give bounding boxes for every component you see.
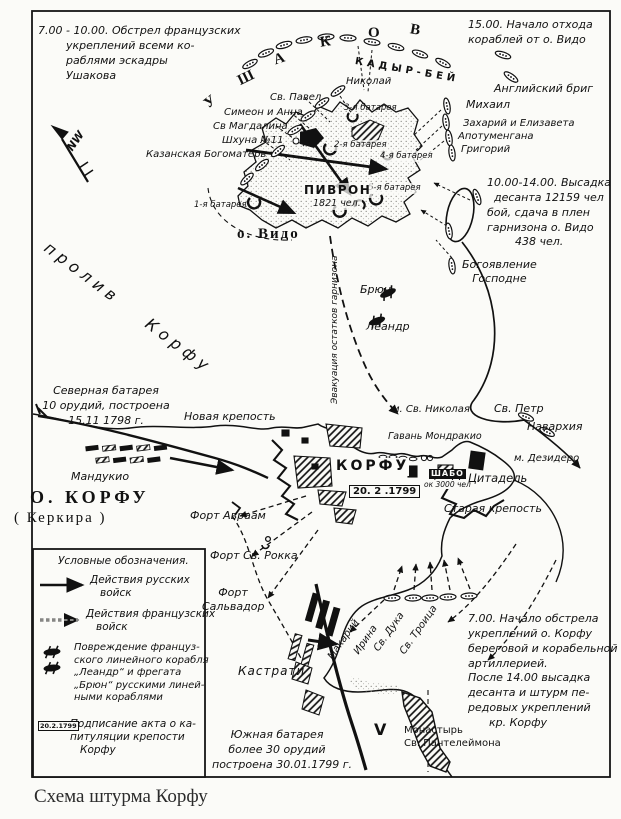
corfu-city-label: КОРФУ [336, 458, 409, 476]
squadron-ushakov-letter: К [319, 33, 332, 51]
vido-commander: ПИВРОН [303, 183, 372, 198]
evacuation-label: Эвакуация остатков гарнизона [330, 255, 341, 404]
legend-russian-actions: Действия русских войск [90, 574, 190, 600]
battery-1-label: 1-я батарея [194, 200, 247, 211]
ship-label-apotumengana: Апотуменгана [458, 131, 534, 144]
battery-2-label: 2-я батарея [333, 140, 388, 151]
map-scheme-storm-of-corfu: 7.00 - 10.00. Обстрел французских укрепл… [0, 0, 621, 819]
note-morning-bombardment: 7.00 - 10.00. Обстрел французских укрепл… [38, 24, 241, 83]
note-corfu-assault: 7.00. Начало обстрела укреплений о. Корф… [468, 612, 618, 731]
battery-4-label: 4-я батарея [379, 151, 434, 162]
monastery-label: Монастырь Св. Пантелеймона [404, 725, 501, 750]
map-caption: Схема штурма Корфу [34, 786, 208, 808]
cape-st-nikolay-label: м. Св. Николая [392, 404, 470, 417]
ship-label-leandr: Леандр [366, 320, 410, 334]
citadel-label: Цитадель [468, 471, 527, 485]
ship-label-pavel: Св. Павел [270, 92, 321, 105]
cape-desidero-label: м. Дезидеро [514, 453, 579, 466]
battery-5-label: 5-я батарея [367, 183, 422, 194]
ship-label-english-brig: Английский бриг [494, 82, 593, 96]
ship-label-zakhariy: Захарий и Елизавета [463, 118, 574, 131]
harbor-label: Гавань Мондракио [388, 431, 482, 443]
ship-label-st-petr: Св. Петр [494, 402, 544, 416]
legend-date-box: 20.2.1799 [38, 721, 79, 731]
ship-label-bogoyavlenie: Богоявление Господне [462, 258, 537, 286]
corfu-island-label: О. КОРФУ [30, 486, 150, 509]
note-ships-withdraw: 15.00. Начало отхода кораблей от о. Видо [468, 18, 593, 48]
legend-title: Условные обозначения. [58, 555, 189, 568]
ship-label-simeon: Симеон и Анна [224, 107, 303, 120]
corfu-strength: ок 3000 чел [424, 480, 471, 489]
ship-label-bryun: Брюн [360, 283, 391, 297]
ship-label-magdalina: Св Магдалина [213, 121, 288, 134]
manduchio-label: Мандукио [71, 470, 129, 484]
ship-label-nikolay: Николай [346, 76, 391, 89]
ship-label-bogomater: Казанская Богоматерь [146, 149, 266, 162]
capitulation-date-box: 20. 2 .1799 [349, 485, 420, 498]
corfu-island-alt-label: ( Керкира ) [14, 509, 107, 528]
fort-rokka-label: Форт Св. Рокка [210, 549, 298, 563]
battery-3-label: 3-я батарея [344, 103, 397, 114]
monastery-mark: V [374, 720, 386, 740]
corfu-commander: ШАБО [429, 469, 466, 479]
ship-label-mikhail: Михаил [466, 98, 510, 112]
legend-ship-damage: Повреждение француз- ского линейного кор… [74, 642, 209, 705]
south-battery-note: Южная батарея более 30 орудий построена … [212, 728, 342, 773]
old-fortress-label: Старая крепость [444, 502, 542, 516]
north-battery-note: Северная батарея 10 орудий, построена 15… [36, 384, 176, 429]
note-landing: 10.00-14.00. Высадка десанта 12159 чел б… [487, 176, 611, 250]
kastrati-label: Кастрати [238, 664, 305, 679]
legend-capitulation: Подписание акта о ка- питуляции крепости… [70, 718, 196, 757]
vido-strength: 1821 чел. [312, 198, 362, 210]
ship-label-shkhuna: Шхуна №11 [222, 135, 284, 148]
ship-label-navarkhia: Навархия [527, 420, 583, 434]
ship-label-grigoriy: Григорий [461, 144, 510, 157]
fort-avraam-label: Форт Авраам [190, 509, 266, 523]
legend-french-actions: Действия французских войск [86, 608, 215, 634]
vido-island-name: о. Видо [237, 225, 300, 244]
new-fortress-label: Новая крепость [184, 410, 276, 424]
squadron-ushakov-letter: О [368, 25, 380, 42]
